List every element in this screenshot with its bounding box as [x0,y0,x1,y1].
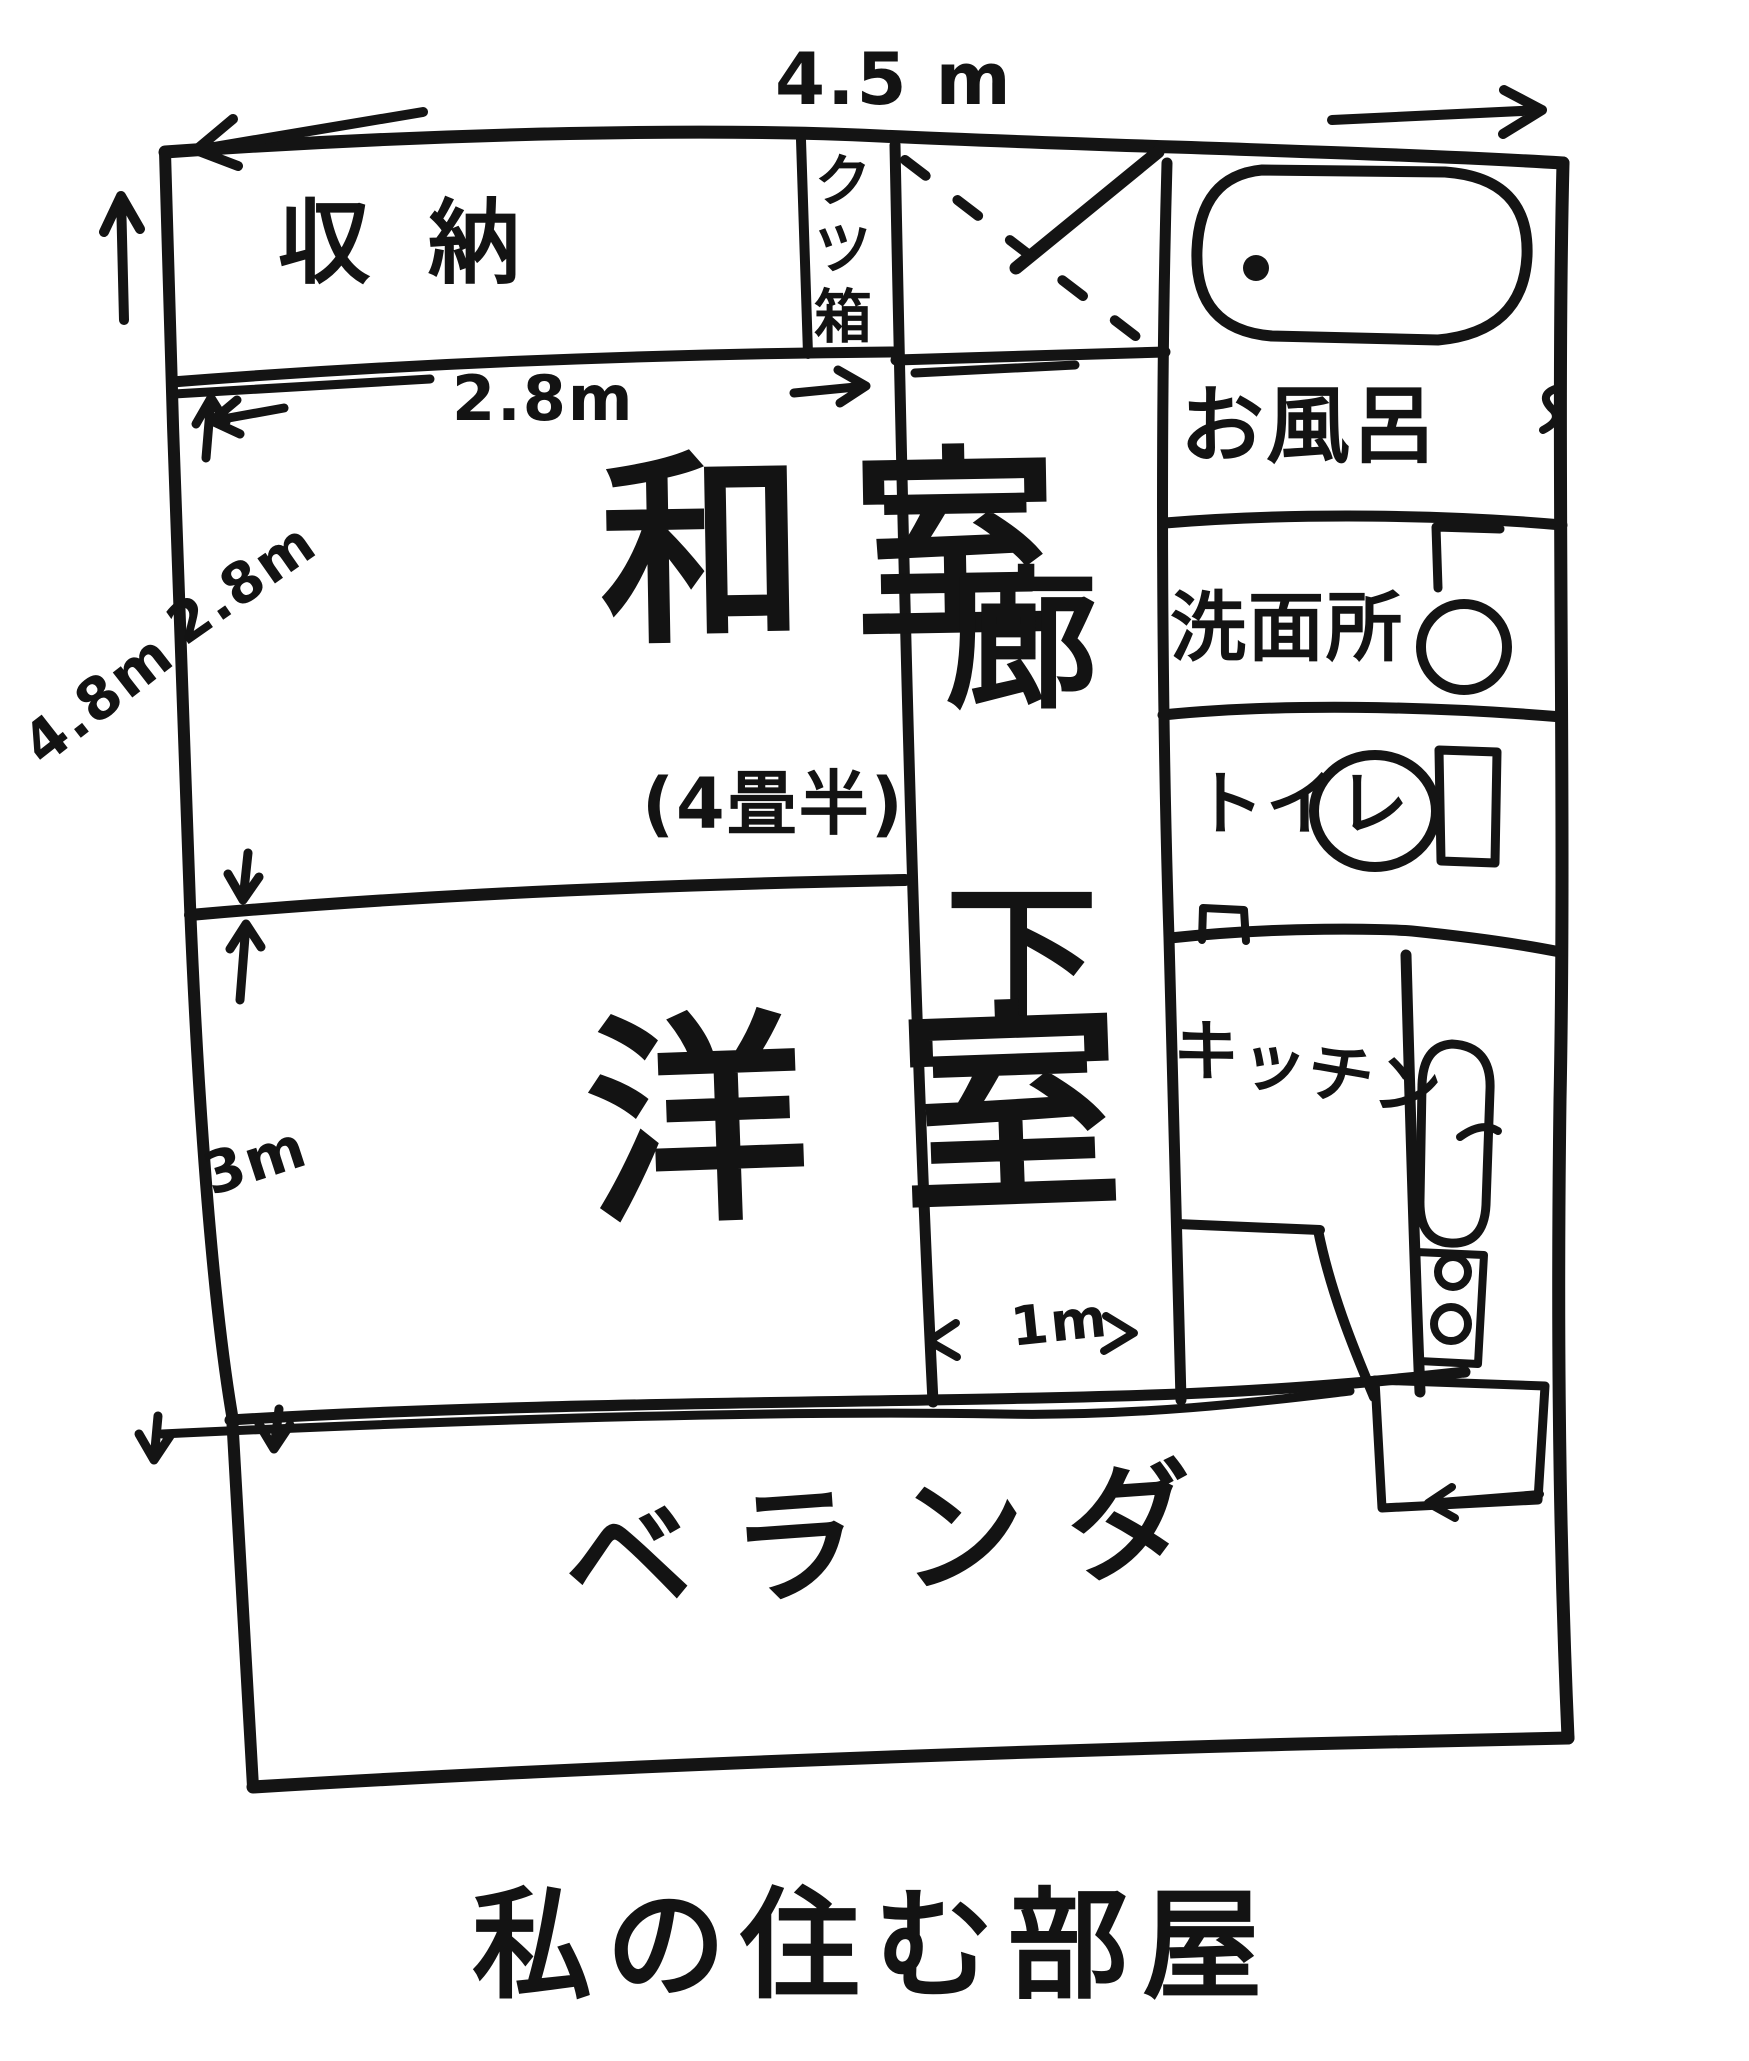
washroom-sink-counter [1436,527,1500,588]
arrow-top-right [1332,90,1542,134]
wall-washroom-bottom [1163,707,1562,717]
dimension-closet-width: 2.8m [452,366,634,431]
toilet-tank [1439,750,1497,863]
room-label-washroom: 洗面所 [1170,588,1404,668]
room-label-washitsu-size: (4畳半) [642,768,905,842]
wall-genkan-bottom-2 [915,365,1075,373]
dimension-top-width: 4.5 m [775,42,1013,118]
wall-toilet-bottom [1170,929,1560,952]
bathtub [1197,170,1527,340]
wall-bottom-veranda [253,1738,1568,1787]
floorplan-sketch: 4.5 m 収納 クツ箱 2.8m 2.8m 4.8m 和室 (4畳半) 廊下 … [0,0,1749,2061]
arrow-washitsu-corner-left [212,400,284,434]
washroom-sink-basin [1421,604,1507,690]
room-label-closet: 収納 [278,196,578,293]
dimension-corridor-width: 1m [1008,1290,1111,1357]
wall-genkan-bottom [896,352,1165,360]
room-label-toilet: トイレ [1194,768,1410,842]
genkan-door-line [1016,152,1158,268]
room-label-bath: お風呂 [1180,382,1438,470]
kitchen-appliance-box [1375,1380,1545,1508]
arrow-left-up [104,196,140,320]
kitchen-step-vertical [1318,1230,1374,1397]
arrow-closet-right [794,370,866,403]
arrow-veranda-down-left [139,1416,170,1460]
arrow-divider-up [230,924,261,1000]
genkan-door-swing-dashed [905,160,1138,338]
wall-bath-bottom [1165,516,1562,525]
bathtub-drain [1243,255,1269,281]
stove-burner-top [1438,1257,1468,1287]
stove-burner-bottom [1434,1307,1468,1341]
arrow-divider-down [228,853,259,900]
room-label-shoebox: クツ箱 [807,150,868,354]
room-label-youshitsu: 洋室 [582,990,1218,1245]
page-title: 私の住む部屋 [472,1884,1276,2010]
wall-room-divider [190,880,905,915]
